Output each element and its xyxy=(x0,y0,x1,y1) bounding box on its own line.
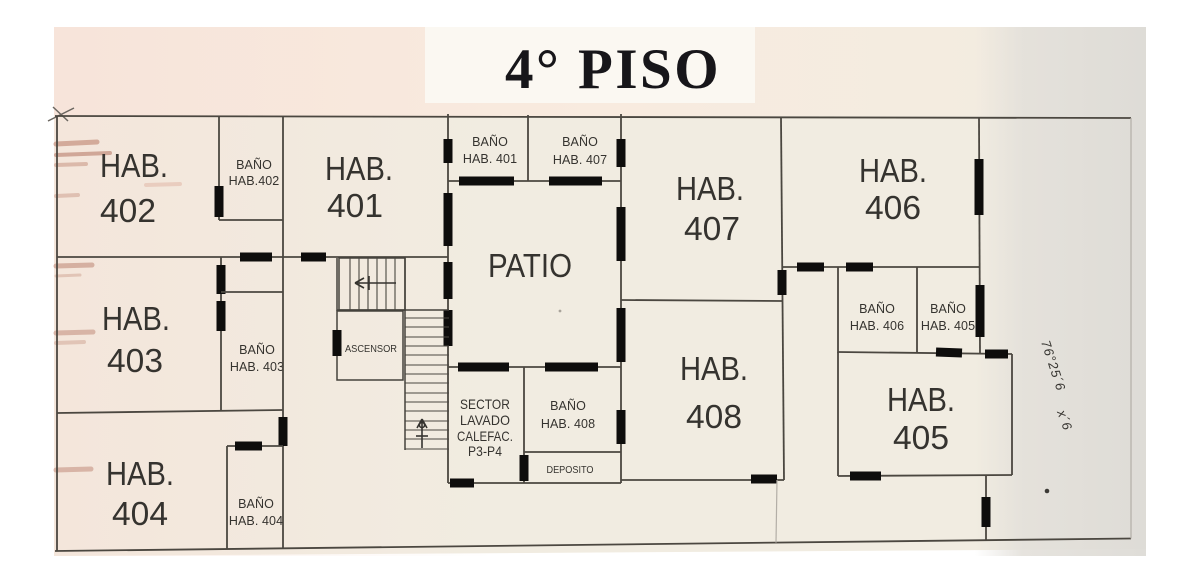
svg-text:HAB. 408: HAB. 408 xyxy=(541,417,595,431)
svg-text:HAB.: HAB. xyxy=(859,152,927,189)
svg-text:HAB.: HAB. xyxy=(100,147,168,184)
svg-text:P3-P4: P3-P4 xyxy=(468,443,502,459)
svg-text:HAB.: HAB. xyxy=(680,350,748,387)
svg-text:HAB.: HAB. xyxy=(887,381,955,418)
svg-text:BAÑO: BAÑO xyxy=(238,497,274,511)
svg-text:HAB.402: HAB.402 xyxy=(229,174,280,188)
svg-text:SECTOR: SECTOR xyxy=(460,396,510,412)
svg-text:PATIO: PATIO xyxy=(488,247,572,284)
svg-text:BAÑO: BAÑO xyxy=(472,135,508,149)
svg-text:HAB.: HAB. xyxy=(676,170,744,207)
svg-text:408: 408 xyxy=(686,398,742,435)
svg-text:402: 402 xyxy=(100,192,156,229)
svg-text:HAB. 406: HAB. 406 xyxy=(850,319,904,333)
svg-text:HAB. 405: HAB. 405 xyxy=(921,319,975,333)
svg-text:BAÑO: BAÑO xyxy=(239,343,275,357)
svg-text:HAB. 401: HAB. 401 xyxy=(463,152,517,166)
svg-text:HAB. 407: HAB. 407 xyxy=(553,153,607,167)
svg-text:ASCENSOR: ASCENSOR xyxy=(345,344,397,355)
svg-text:401: 401 xyxy=(327,187,383,224)
svg-text:406: 406 xyxy=(865,189,921,226)
svg-text:4° PISO: 4° PISO xyxy=(505,38,721,101)
svg-text:405: 405 xyxy=(893,419,949,456)
svg-text:CALEFAC.: CALEFAC. xyxy=(457,428,513,444)
svg-text:DEPOSITO: DEPOSITO xyxy=(547,464,594,476)
svg-text:BAÑO: BAÑO xyxy=(930,302,966,316)
svg-text:LAVADO: LAVADO xyxy=(460,412,510,428)
svg-text:BAÑO: BAÑO xyxy=(859,302,895,316)
svg-text:407: 407 xyxy=(684,210,740,247)
svg-text:HAB.: HAB. xyxy=(102,300,170,337)
svg-text:404: 404 xyxy=(112,495,168,532)
svg-text:HAB. 404: HAB. 404 xyxy=(229,514,283,528)
svg-text:HAB.: HAB. xyxy=(106,455,174,492)
svg-text:BAÑO: BAÑO xyxy=(562,135,598,149)
svg-text:HAB.: HAB. xyxy=(325,150,393,187)
svg-text:HAB. 403: HAB. 403 xyxy=(230,360,284,374)
svg-text:BAÑO: BAÑO xyxy=(236,158,272,172)
svg-text:403: 403 xyxy=(107,342,163,379)
svg-text:BAÑO: BAÑO xyxy=(550,399,586,413)
